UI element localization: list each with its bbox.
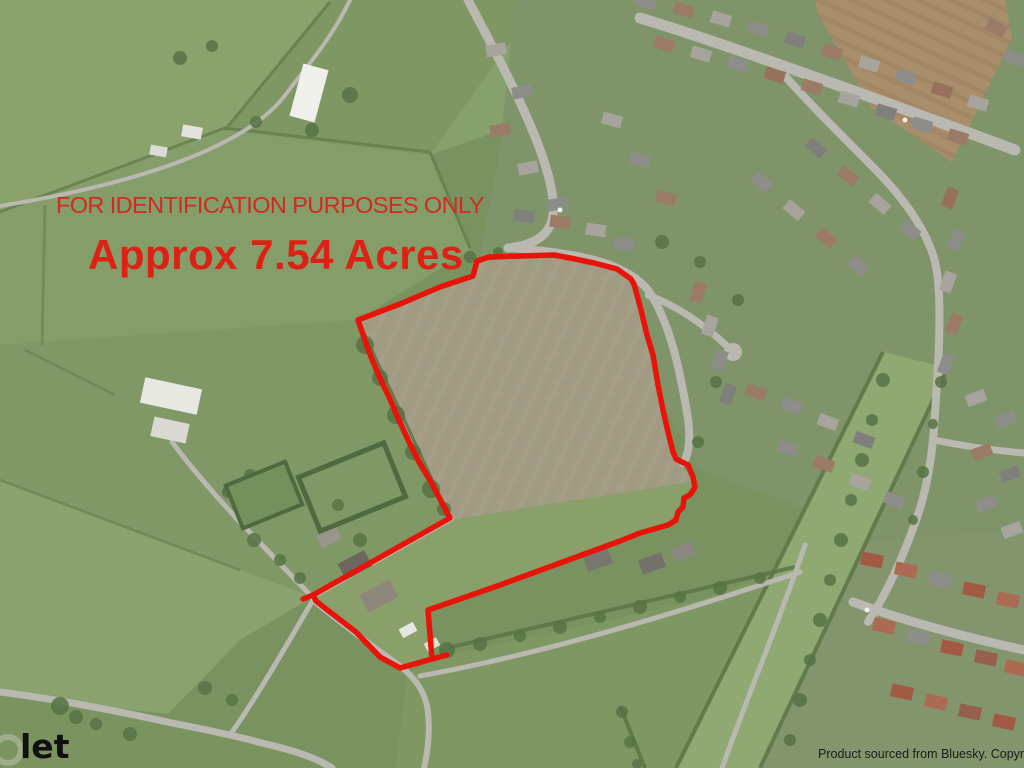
area-label: Approx 7.54 Acres: [88, 231, 464, 279]
aerial-photo: FOR IDENTIFICATION PURPOSES ONLY Approx …: [0, 0, 1024, 768]
attribution-text: Product sourced from Bluesky. Copyright …: [818, 747, 1024, 761]
watermark-let: let: [20, 727, 69, 766]
aerial-imagery: [0, 0, 1024, 768]
identification-notice: FOR IDENTIFICATION PURPOSES ONLY: [56, 192, 484, 219]
